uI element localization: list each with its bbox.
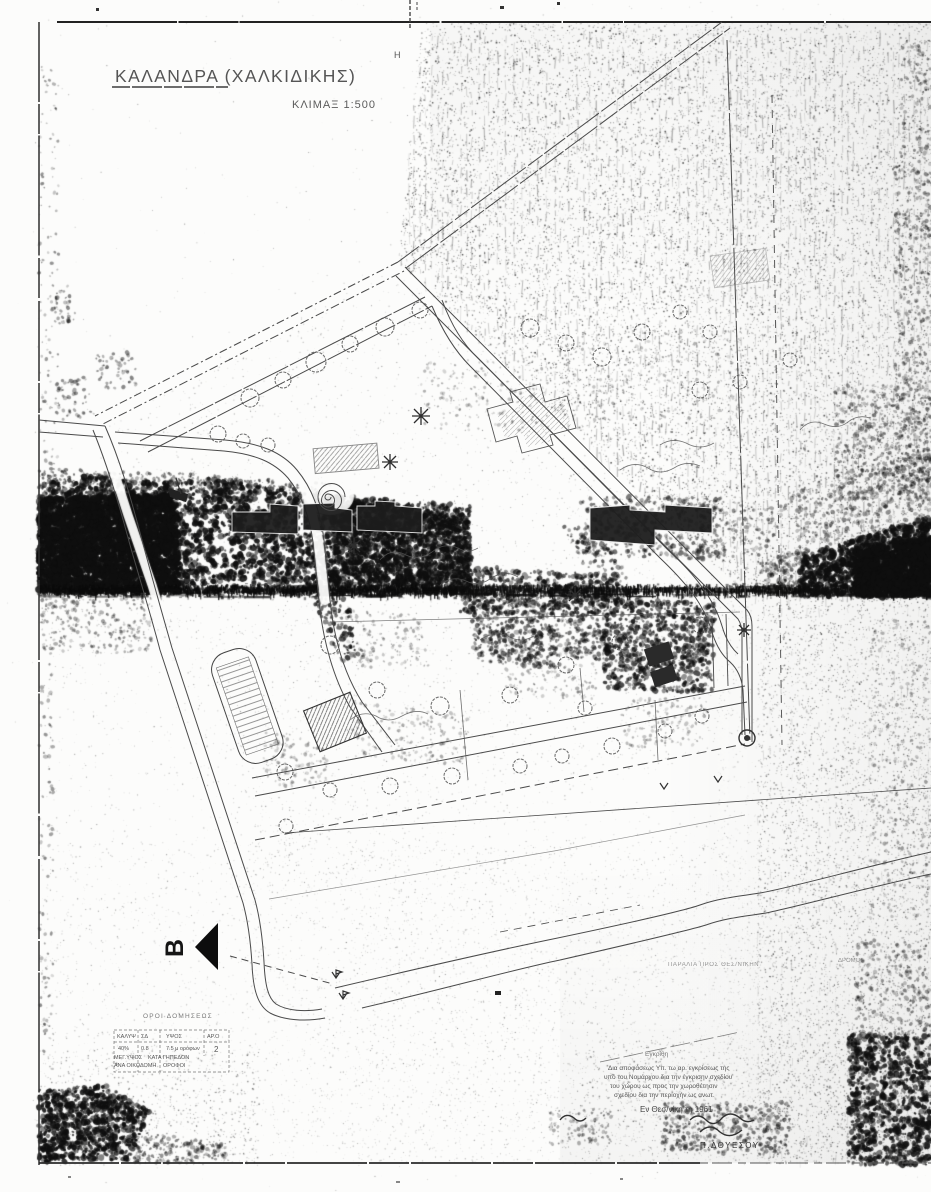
svg-text:του χώρου ως προς την χωροθέτη: του χώρου ως προς την χωροθέτησιν (610, 1082, 717, 1090)
svg-text:7.5 μ ορόφων: 7.5 μ ορόφων (166, 1045, 200, 1052)
svg-text:ΟΡΟΦΟΙ: ΟΡΟΦΟΙ (163, 1063, 186, 1069)
svg-text:2: 2 (214, 1045, 219, 1054)
svg-text:ΥΨΟΣ: ΥΨΟΣ (166, 1034, 183, 1040)
svg-text:ΜΕΓ.ΥΨΟΣ: ΜΕΓ.ΥΨΟΣ (114, 1055, 143, 1061)
svg-text:ΚΛΙΜΑΞ 1:500: ΚΛΙΜΑΞ 1:500 (292, 99, 376, 111)
svg-text:Εγκρίθη: Εγκρίθη (645, 1050, 669, 1058)
svg-text:B: B (161, 939, 189, 957)
svg-text:0.8: 0.8 (141, 1046, 149, 1052)
svg-text:Η: Η (394, 50, 401, 60)
svg-text:Δια αποφάσεως Υπ. τω αρ. εγκρί: Δια αποφάσεως Υπ. τω αρ. εγκρίσεως της (608, 1064, 730, 1072)
svg-text:ΔΡΟΜΟΣ: ΔΡΟΜΟΣ (838, 958, 864, 964)
svg-text:ΑΡ.Ο: ΑΡ.Ο (207, 1034, 220, 1040)
svg-text:ΑΝΑ ΟΙΚΟΔΟΜΗ: ΑΝΑ ΟΙΚΟΔΟΜΗ (114, 1063, 156, 1069)
svg-text:σχεδίου δια την περιοχήν ως αν: σχεδίου δια την περιοχήν ως ανωτ. (614, 1091, 715, 1099)
svg-text:Εν Θεσ/νίκη τη 1961: Εν Θεσ/νίκη τη 1961 (640, 1105, 713, 1114)
svg-text:ΚΑΛΥΨ: ΚΑΛΥΨ (117, 1034, 136, 1040)
svg-text:υπό του Νομάρχου δια την έγκρι: υπό του Νομάρχου δια την έγκρισην σχεδίο… (604, 1073, 733, 1081)
svg-text:ΣΔ: ΣΔ (141, 1034, 148, 1040)
svg-text:Π.ΔΟΥΕΣΟΥ: Π.ΔΟΥΕΣΟΥ (700, 1141, 760, 1150)
svg-text:ΚΑΛΑΝΔΡΑ (ΧΑΛΚΙΔΙΚΗΣ): ΚΑΛΑΝΔΡΑ (ΧΑΛΚΙΔΙΚΗΣ) (115, 66, 356, 86)
svg-text:ΠΑΡΑΛΙΑ ΠΡΟΣ ΘΕΣ/ΝΙΚΗΝ: ΠΑΡΑΛΙΑ ΠΡΟΣ ΘΕΣ/ΝΙΚΗΝ (668, 962, 759, 968)
svg-text:40%: 40% (118, 1046, 129, 1052)
svg-text:ΚΑΤΑ ΓΗΠΕΔΟΝ: ΚΑΤΑ ΓΗΠΕΔΟΝ (148, 1055, 189, 1061)
svg-text:ΟΡΟΙ ΔΟΜΗΣΕΩΣ: ΟΡΟΙ ΔΟΜΗΣΕΩΣ (143, 1013, 213, 1020)
